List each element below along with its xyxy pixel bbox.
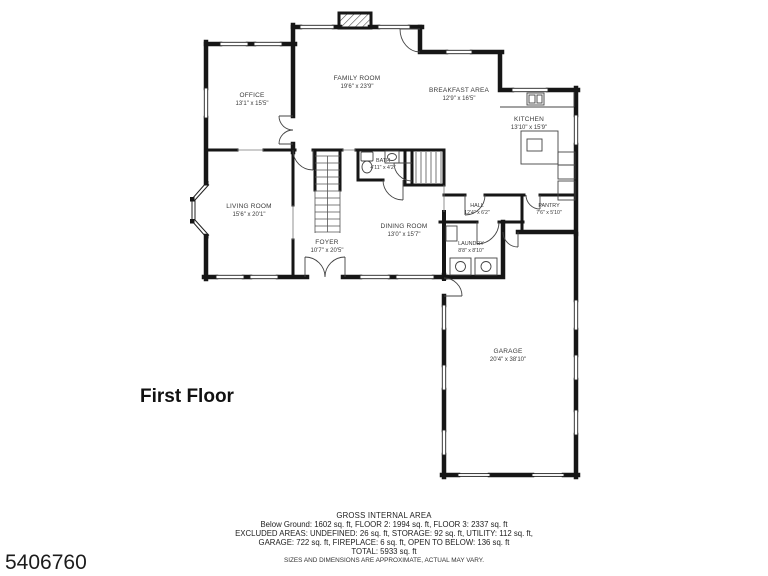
room-dims-pantry: 7'6" x 5'10"	[536, 210, 562, 216]
footer-disclaimer: SIZES AND DIMENSIONS ARE APPROXIMATE, AC…	[284, 557, 484, 564]
floor-plan-canvas: OFFICE 13'1" x 15'5" FAMILY ROOM 19'6" x…	[0, 0, 768, 576]
room-dims-office: 13'1" x 15'5"	[236, 101, 269, 107]
room-label-foyer: FOYER	[315, 239, 338, 246]
room-dims-family: 19'6" x 23'9"	[341, 84, 374, 90]
main-staircase	[315, 156, 340, 233]
fireplace-chimney	[339, 13, 371, 28]
bay-window	[190, 181, 209, 239]
room-label-family: FAMILY ROOM	[334, 75, 381, 82]
room-label-bath: BATH	[376, 158, 390, 164]
room-label-pantry: PANTRY	[538, 203, 560, 209]
room-dims-garage: 20'4" x 38'10"	[490, 357, 526, 363]
room-dims-laundry: 8'8" x 8'10"	[458, 248, 484, 254]
footer: GROSS INTERNAL AREA Below Ground: 1602 s…	[235, 511, 533, 564]
room-dims-breakfast: 12'9" x 16'5"	[443, 96, 476, 102]
room-label-laundry: LAUNDRY	[458, 241, 484, 247]
room-dims-bath: 4'11" x 4'2"	[370, 165, 395, 171]
room-dims-living: 15'6" x 20'1"	[233, 212, 266, 218]
photo-id: 5406760	[5, 551, 87, 574]
room-dims-hall: 12'4" x 6'2"	[464, 210, 490, 216]
room-labels: OFFICE 13'1" x 15'5" FAMILY ROOM 19'6" x…	[226, 75, 562, 363]
room-label-breakfast: BREAKFAST AREA	[429, 87, 490, 94]
room-label-kitchen: KITCHEN	[514, 116, 544, 123]
kitchen-fixtures	[500, 92, 575, 200]
room-label-living: LIVING ROOM	[226, 203, 272, 210]
footer-line-2: EXCLUDED AREAS: UNDEFINED: 26 sq. ft, ST…	[235, 529, 533, 538]
footer-line-1: Below Ground: 1602 sq. ft, FLOOR 2: 1994…	[260, 520, 508, 529]
room-dims-kitchen: 13'10" x 15'9"	[511, 125, 547, 131]
room-dims-foyer: 10'7" x 20'5"	[311, 248, 344, 254]
footer-line-3: GARAGE: 722 sq. ft, FIREPLACE: 6 sq. ft,…	[259, 538, 511, 547]
floor-title: First Floor	[140, 386, 235, 407]
room-label-dining: DINING ROOM	[381, 223, 428, 230]
room-label-office: OFFICE	[239, 92, 264, 99]
footer-title: GROSS INTERNAL AREA	[336, 511, 432, 520]
floor-plan-page: OFFICE 13'1" x 15'5" FAMILY ROOM 19'6" x…	[0, 0, 768, 576]
room-label-garage: GARAGE	[493, 348, 522, 355]
back-staircase	[416, 152, 441, 183]
room-label-hall: HALL	[470, 203, 484, 209]
room-dims-dining: 13'0" x 15'7"	[388, 232, 421, 238]
footer-line-4: TOTAL: 5933 sq. ft	[351, 547, 417, 556]
